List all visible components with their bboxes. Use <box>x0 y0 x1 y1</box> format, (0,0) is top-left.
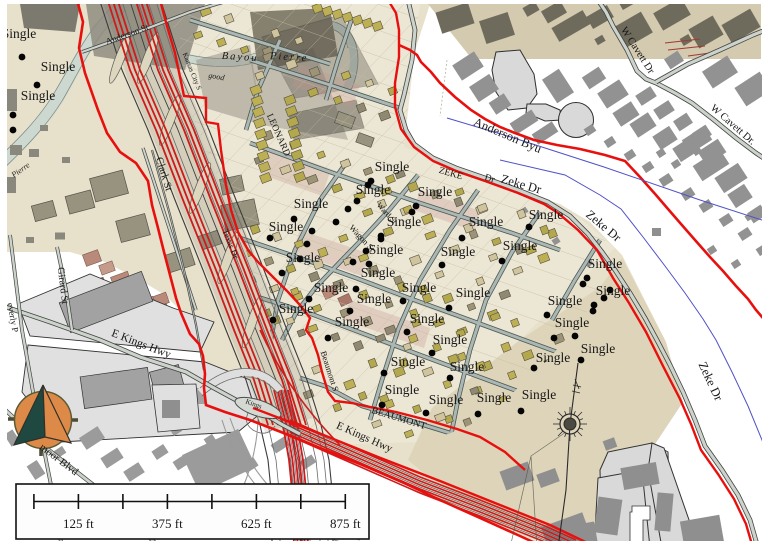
svg-text:625 ft: 625 ft <box>241 516 272 531</box>
svg-text:Single: Single <box>375 159 410 174</box>
svg-text:Single: Single <box>294 196 329 211</box>
svg-text:Single: Single <box>469 214 504 229</box>
svg-text:Single: Single <box>503 238 538 253</box>
svg-text:Single: Single <box>21 88 56 103</box>
svg-text:Single: Single <box>402 280 437 295</box>
svg-text:Single: Single <box>548 293 583 308</box>
svg-text:Single: Single <box>555 315 590 330</box>
svg-text:Single: Single <box>456 285 491 300</box>
svg-text:875 ft: 875 ft <box>330 516 361 531</box>
svg-text:375 ft: 375 ft <box>152 516 183 531</box>
svg-text:Single: Single <box>418 184 453 199</box>
svg-text:Single: Single <box>357 291 392 306</box>
svg-text:Single: Single <box>335 314 370 329</box>
svg-text:Single: Single <box>441 244 476 259</box>
svg-text:Single: Single <box>391 354 426 369</box>
svg-text:Single: Single <box>529 207 564 222</box>
svg-text:Single: Single <box>286 250 321 265</box>
svg-text:Single: Single <box>314 280 349 295</box>
svg-text:Single: Single <box>356 182 391 197</box>
svg-text:Single: Single <box>450 359 485 374</box>
svg-text:Single: Single <box>361 265 396 280</box>
svg-text:125 ft: 125 ft <box>63 516 94 531</box>
svg-text:Single: Single <box>596 283 631 298</box>
svg-text:Single: Single <box>477 390 512 405</box>
svg-text:Single: Single <box>269 219 304 234</box>
svg-text:Single: Single <box>433 332 468 347</box>
svg-text:Single: Single <box>41 59 76 74</box>
svg-text:Single: Single <box>581 341 616 356</box>
svg-text:Single: Single <box>588 256 623 271</box>
svg-text:Single: Single <box>385 382 420 397</box>
svg-text:Single: Single <box>410 311 445 326</box>
svg-text:Single: Single <box>536 350 571 365</box>
svg-text:Single: Single <box>522 387 557 402</box>
svg-text:Single: Single <box>279 301 314 316</box>
svg-text:Single: Single <box>429 392 464 407</box>
